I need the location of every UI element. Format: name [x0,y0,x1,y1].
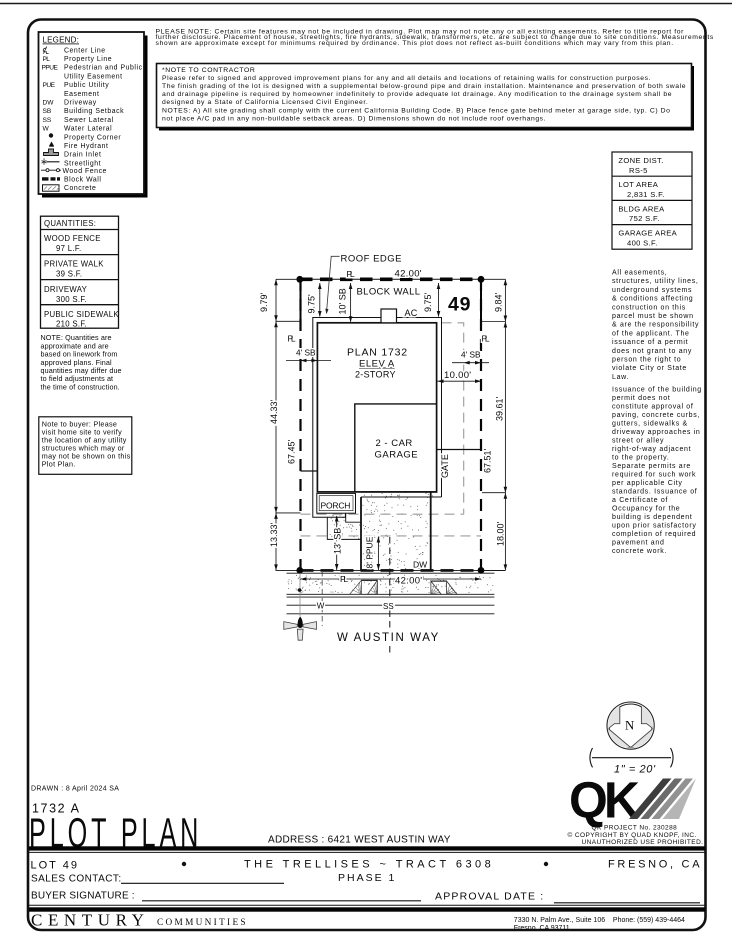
svg-text:Building Setback: Building Setback [64,108,124,115]
svg-text:2-STORY: 2-STORY [355,370,396,380]
svg-text:a Certificate of: a Certificate of [612,497,668,504]
svg-text:42.00': 42.00' [395,576,422,587]
svg-text:300 S.F.: 300 S.F. [56,295,87,304]
svg-text:gutters, sidewalks &: gutters, sidewalks & [612,420,688,427]
svg-text:ADDRESS : 6421 WEST AUSTIN W: ADDRESS : 6421 WEST AUSTIN WAY [268,835,451,846]
svg-text:Sewer Lateral: Sewer Lateral [64,117,114,124]
svg-text:39 S.F.: 39 S.F. [56,269,82,278]
svg-text:WOOD FENCE: WOOD FENCE [44,234,101,243]
svg-text:N: N [625,719,634,733]
svg-text:GARAGE AREA: GARAGE AREA [618,229,677,238]
svg-text:DRIVEWAY: DRIVEWAY [44,285,88,294]
svg-text:44.33': 44.33' [269,399,279,424]
svg-text:752 S.F.: 752 S.F. [629,214,660,223]
svg-text:42.00': 42.00' [395,269,422,280]
svg-text:P L: P L [482,334,490,344]
svg-text:Fresno, CA 93711: Fresno, CA 93711 [514,925,570,932]
svg-text:2,831 S.F.: 2,831 S.F. [627,190,665,199]
svg-text:9.79': 9.79' [259,292,269,312]
svg-text:Drain Inlet: Drain Inlet [64,152,101,159]
svg-text:upon prior satisfactory: upon prior satisfactory [612,522,697,529]
svg-text:Utility Easement: Utility Easement [64,73,123,80]
svg-text:DRAWN : 8 April 2024 SA: DRAWN : 8 April 2024 SA [31,786,119,793]
svg-text:GATE: GATE [440,454,450,478]
svg-text:UNAUTHORIZED USE PROHIBITED.: UNAUTHORIZED USE PROHIBITED. [582,839,704,846]
svg-text:THE TRELLISES ~ TRACT 6308: THE TRELLISES ~ TRACT 6308 [244,859,494,871]
svg-text:& are the responsibility: & are the responsibility [612,322,699,329]
svg-text:2 - CAR: 2 - CAR [376,438,413,449]
svg-text:parcel must be shown: parcel must be shown [612,313,694,320]
svg-text:9.75': 9.75' [307,294,317,314]
svg-text:13' SB: 13' SB [333,528,343,554]
svg-text:DW: DW [43,100,55,107]
svg-text:issuance of a permit: issuance of a permit [612,339,688,346]
svg-text:CENTURY: CENTURY [31,911,150,930]
svg-text:4' SB: 4' SB [461,350,481,360]
svg-text:right-of-way adjacent: right-of-way adjacent [612,446,691,453]
svg-text:underground systems: underground systems [612,287,692,294]
svg-text:does not grant to any: does not grant to any [612,348,692,355]
svg-text:Plot Plan.: Plot Plan. [42,460,76,469]
svg-text:9.75': 9.75' [423,292,433,312]
svg-text:8' PPUE: 8' PPUE [365,536,375,568]
svg-text:SS: SS [383,602,394,611]
svg-text:shown are approximate except f: shown are approximate except for minimum… [156,40,674,47]
svg-text:10' SB: 10' SB [338,288,348,314]
svg-text:designed by a State of Califor: designed by a State of California Licens… [162,99,368,106]
svg-text:W AUSTIN WAY: W AUSTIN WAY [337,632,440,644]
svg-text:street or alley: street or alley [612,437,664,444]
svg-text:Property Line: Property Line [64,56,112,63]
svg-text:not place A/C pad in any non-b: not place A/C pad in any non-buildable s… [162,115,546,122]
svg-text:Easement: Easement [64,91,99,98]
svg-text:PHASE 1: PHASE 1 [338,872,396,884]
svg-text:PUE: PUE [43,82,56,89]
svg-text:LOT AREA: LOT AREA [618,180,658,189]
svg-text:standards. Issuance of: standards. Issuance of [612,488,697,495]
svg-text:to the property.: to the property. [612,454,669,461]
svg-text:required for such work: required for such work [612,471,696,478]
svg-text:concrete work.: concrete work. [612,548,667,555]
svg-text:PLAN 1732: PLAN 1732 [347,347,408,359]
svg-text:67.45': 67.45' [287,439,297,464]
svg-text:W: W [43,126,50,133]
svg-text:of the applicant. The: of the applicant. The [612,330,690,337]
svg-text:4' SB: 4' SB [296,348,316,358]
svg-text:Occupancy for the: Occupancy for the [612,505,680,512]
svg-text:Concrete: Concrete [64,185,96,192]
svg-text:*NOTE TO CONTRACTOR: *NOTE TO CONTRACTOR [162,67,255,74]
svg-text:The finish grading of the lot: The finish grading of the lot is designe… [162,83,686,90]
svg-text:ROOF EDGE: ROOF EDGE [341,254,403,265]
svg-text:Wood Fence: Wood Fence [63,168,107,175]
svg-text:Law.: Law. [612,374,629,381]
svg-text:FRESNO, CA: FRESNO, CA [608,859,702,871]
svg-text:AC: AC [405,308,418,318]
svg-text:Center Line: Center Line [64,47,106,54]
svg-text:and drainage pipeline is requi: and drainage pipeline is required by hom… [162,91,672,98]
svg-text:PL: PL [43,56,51,63]
svg-text:PUBLIC SIDEWALK: PUBLIC SIDEWALK [44,310,119,319]
svg-text:All easements,: All easements, [612,270,667,277]
svg-text:7330 N. Palm Ave., Suite 106: 7330 N. Palm Ave., Suite 106 Phone: (559… [514,917,685,924]
svg-text:Property Corner: Property Corner [64,134,121,141]
svg-text:BLOCK WALL: BLOCK WALL [357,287,421,298]
svg-text:SS: SS [43,117,52,124]
svg-text:400 S.F.: 400 S.F. [627,238,658,247]
svg-text:Pedestrian and Public: Pedestrian and Public [64,65,143,72]
svg-text:APPROVAL DATE :: APPROVAL DATE : [435,891,544,903]
svg-text:P L: P L [288,334,296,344]
svg-text:49: 49 [448,294,471,316]
svg-text:building is dependent: building is dependent [612,514,692,521]
svg-text:completion of required: completion of required [612,531,696,538]
svg-text:210 S.F.: 210 S.F. [56,319,87,328]
svg-text:COMMUNITIES: COMMUNITIES [157,918,248,928]
svg-text:ELEV A: ELEV A [359,359,395,370]
svg-text:BLDG AREA: BLDG AREA [618,204,665,213]
svg-text:GARAGE: GARAGE [375,450,419,461]
svg-text:QK PROJECT No. 230288: QK PROJECT No. 230288 [592,825,678,832]
svg-text:Fire Hydrant: Fire Hydrant [64,143,109,150]
svg-text:PPUE: PPUE [42,65,59,72]
svg-text:person the right to: person the right to [612,357,681,364]
svg-text:BUYER SIGNATURE :: BUYER SIGNATURE : [31,891,135,902]
svg-text:RS-5: RS-5 [629,166,648,175]
svg-text:PORCH: PORCH [321,501,351,511]
svg-text:10.00': 10.00' [444,370,471,381]
svg-text:QK: QK [569,771,640,829]
svg-text:LOT 49: LOT 49 [31,860,80,872]
svg-text:Issuance of the building: Issuance of the building [612,386,702,393]
svg-text:driveway approaches in: driveway approaches in [612,429,701,436]
svg-text:Block Wall: Block Wall [64,177,101,184]
svg-text:W: W [317,602,325,611]
svg-text:construction on this: construction on this [612,304,686,311]
svg-text:LEGEND:: LEGEND: [43,36,80,45]
svg-text:Streetlight: Streetlight [64,160,101,167]
svg-text:violate City or State: violate City or State [612,365,687,372]
svg-text:constitute approval of: constitute approval of [612,403,694,410]
svg-text:Water Lateral: Water Lateral [64,126,112,133]
svg-text:Public Utility: Public Utility [64,82,109,89]
svg-text:18.00': 18.00' [496,521,506,546]
svg-text:per applicable City: per applicable City [612,480,683,487]
svg-text:Driveway: Driveway [64,100,97,107]
svg-text:structures, utility lines,: structures, utility lines, [612,278,699,285]
svg-text:paving, concrete curbs,: paving, concrete curbs, [612,412,700,419]
svg-text:NOTES: A) All site grading sh: NOTES: A) All site grading shall comply … [162,107,671,114]
svg-text:97 L.F.: 97 L.F. [56,244,82,253]
svg-text:ZONE DIST.: ZONE DIST. [618,156,663,165]
svg-text:39.61': 39.61' [495,396,505,421]
svg-text:Please refer to signed and app: Please refer to signed and approved impr… [162,75,651,82]
svg-text:9.84': 9.84' [494,292,504,312]
svg-text:SB: SB [43,108,52,115]
svg-text:& conditions affecting: & conditions affecting [612,296,693,303]
svg-text:P L: P L [347,269,355,279]
svg-text:the time of construction.: the time of construction. [41,382,120,391]
svg-text:QUANTITIES:: QUANTITIES: [44,219,96,228]
svg-text:13.33': 13.33' [269,522,279,547]
svg-text:67.51': 67.51' [483,448,493,473]
svg-text:permit does not: permit does not [612,395,670,402]
svg-text:© COPYRIGHT BY QUAD KNOPF, I: © COPYRIGHT BY QUAD KNOPF, INC. [568,831,697,839]
svg-text:DW: DW [413,560,427,570]
svg-text:Separate permits are: Separate permits are [612,463,691,470]
svg-text:PRIVATE WALK: PRIVATE WALK [44,260,104,269]
svg-text:pavement and: pavement and [612,539,665,546]
svg-text:SALES CONTACT:: SALES CONTACT: [31,874,122,885]
